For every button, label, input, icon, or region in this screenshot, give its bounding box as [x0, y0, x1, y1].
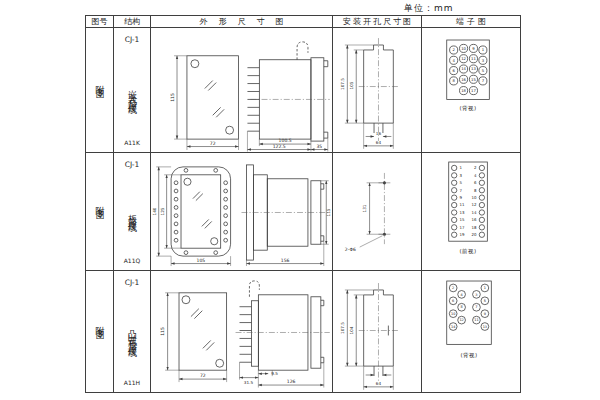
model-label: CJ-1 [125, 278, 140, 287]
row1-fig-no-cell: 附图3 [86, 28, 114, 153]
terminal-number: 2 [474, 165, 477, 170]
terminal-number: 4 [474, 173, 477, 178]
terminal-pin [451, 210, 456, 215]
hook-symbol [297, 42, 308, 60]
row3-fig-no-cell: 附图3 [86, 271, 114, 393]
terminal-number: 5 [460, 180, 463, 185]
terminal-diagram-rear-a11k: (背视) 210914121136141358161571817 [422, 28, 520, 152]
terminal-pin [479, 225, 484, 230]
structure-name: 板前接线 [126, 207, 139, 219]
model-code: A11K [124, 139, 140, 146]
side-view: 100.5 122.5 35 [247, 42, 329, 152]
view-label: (前视) [459, 248, 476, 255]
model-label: CJ-1 [125, 35, 140, 44]
dim-label: 131 [362, 204, 367, 212]
terminal-pin [451, 188, 456, 193]
mounting-drawing-a11q: 131 2-Φ6 [333, 153, 421, 270]
terminal-pin [451, 202, 456, 207]
dim-label: 122.5 [273, 144, 286, 149]
dim-label: 64 [376, 381, 382, 386]
terminal-number: 15 [460, 217, 466, 222]
terminal-number: 9 [472, 47, 475, 51]
terminal-number: 7 [482, 79, 485, 83]
hole-spec-label: 2-Φ6 [345, 247, 356, 252]
terminal-number: 1 [484, 286, 486, 290]
mounting-drawing-a11h: 107.5 104 64 [333, 271, 421, 392]
terminal-pin [479, 217, 484, 222]
terminal-number: 20 [471, 232, 477, 237]
terminal-number: 11 [474, 318, 478, 322]
terminal-number: 18 [461, 89, 466, 93]
dim-label: 100.5 [279, 138, 292, 143]
front-view: 140 125 105 [152, 167, 231, 266]
dim-label: 31.5 [244, 380, 254, 385]
header-fig-no: 图号 [86, 16, 114, 28]
view-label: (背视) [460, 352, 477, 359]
terminal-pin [479, 165, 484, 170]
terminal-pin [479, 180, 484, 185]
row1-structure-cell: CJ-1 嵌入式后接线 A11K [114, 28, 151, 153]
terminal-pin [479, 210, 484, 215]
terminal-number: 16 [471, 217, 477, 222]
fig-no-label: 附图3 [93, 199, 106, 224]
side-view: 9.5 31.5 126 [236, 281, 330, 388]
terminal-number: 5 [482, 69, 485, 73]
model-label: CJ-1 [125, 160, 140, 169]
terminal-number: 7 [460, 188, 463, 193]
row2-outline-cell: 140 125 105 156 115 [151, 153, 333, 271]
dim-label: 140 [152, 207, 157, 215]
mounting-drawing-a11k: 107.5 105 16 64 [333, 28, 421, 152]
terminal-diagram-front-a11q: (前视) 1357911131517192468101214161820 [422, 153, 520, 270]
terminal-number: 14 [471, 210, 477, 215]
terminal-number: 1 [460, 165, 463, 170]
terminal-number: 6 [452, 299, 454, 303]
structure-name: 凸出式板后接线 [126, 323, 139, 344]
view-label: (背视) [459, 105, 476, 112]
row3-outline-cell: 115 72 9.5 31.5 [151, 271, 333, 393]
terminal-pin [451, 173, 456, 178]
row1-outline-cell: 115 72 100.5 122.5 35 [151, 28, 333, 153]
terminal-number: 6 [474, 180, 477, 185]
front-view: 115 72 [170, 56, 239, 150]
dim-label: 107.5 [340, 78, 345, 90]
terminal-diagram-rear-a11h: (背视) 2610144812371115913 [422, 271, 520, 392]
front-view: 115 72 [160, 293, 226, 382]
dim-label: 105 [349, 81, 354, 89]
spec-table: 图号 结构 外形尺寸图 安装开孔尺寸图 端子图 附图3 CJ-1 嵌入式后接线 … [85, 15, 521, 393]
terminal-number: 10 [451, 312, 455, 316]
terminal-number: 4 [460, 293, 462, 297]
terminal-number: 10 [461, 47, 466, 51]
terminal-number: 17 [460, 225, 466, 230]
row1-terminal-cell: (背视) 210914121136141358161571817 [422, 28, 521, 153]
model-code: A11H [124, 379, 140, 386]
unit-label: 单位：mm [404, 2, 454, 15]
terminal-pin [479, 188, 484, 193]
structure-name: 嵌入式后接线 [126, 83, 139, 101]
terminal-number: 11 [460, 202, 466, 207]
row2-mounting-cell: 131 2-Φ6 [333, 153, 422, 271]
outline-drawing-a11k: 115 72 100.5 122.5 35 [151, 28, 332, 152]
terminal-number: 13 [471, 67, 476, 71]
terminal-number: 8 [452, 79, 455, 83]
dim-label: 115 [326, 208, 331, 216]
dim-label: 126 [287, 379, 296, 384]
terminal-pin [479, 173, 484, 178]
terminal-number: 4 [452, 59, 455, 63]
terminal-number: 12 [461, 57, 466, 61]
terminal-pin [451, 225, 456, 230]
row3-terminal-cell: (背视) 2610144812371115913 [422, 271, 521, 393]
terminal-number: 3 [460, 173, 463, 178]
header-mounting: 安装开孔尺寸图 [333, 16, 422, 28]
dim-label: 107.5 [340, 322, 345, 334]
dim-label: 9.5 [271, 371, 278, 376]
terminal-number: 2 [452, 286, 454, 290]
terminal-number: 13 [460, 210, 466, 215]
row2-terminal-cell: (前视) 1357911131517192468101214161820 [422, 153, 521, 271]
terminal-pin [451, 180, 456, 185]
terminal-number: 7 [475, 305, 477, 309]
terminal-number: 11 [471, 57, 476, 61]
dim-label: 115 [160, 327, 165, 336]
terminal-number: 8 [474, 188, 477, 193]
outline-drawing-a11h: 115 72 9.5 31.5 [151, 271, 332, 392]
terminal-pin [451, 165, 456, 170]
terminal-number: 3 [482, 59, 485, 63]
terminal-pin [451, 217, 456, 222]
terminal-number: 5 [484, 299, 486, 303]
datasheet-page: 单位：mm 图号 结构 外形尺寸图 安装开孔尺寸图 端子图 附图3 CJ-1 嵌… [0, 0, 600, 400]
terminal-pin [479, 195, 484, 200]
terminal-number: 18 [471, 225, 477, 230]
row3-structure-cell: CJ-1 凸出式板后接线 A11H [114, 271, 151, 393]
dim-label: 105 [197, 258, 206, 263]
terminal-number: 15 [471, 78, 476, 82]
header-structure: 结构 [114, 16, 151, 28]
terminal-number: 13 [483, 325, 487, 329]
row2-fig-no-cell: 附图3 [86, 153, 114, 271]
terminal-number: 2 [452, 48, 455, 52]
terminal-pin [451, 195, 456, 200]
terminal-number: 14 [461, 67, 466, 71]
terminal-number: 10 [471, 195, 477, 200]
terminal-number: 6 [452, 69, 455, 73]
terminal-number: 19 [460, 232, 466, 237]
terminal-number: 16 [461, 78, 466, 82]
terminal-number: 8 [460, 305, 462, 309]
terminal-pin [479, 202, 484, 207]
row2-structure-cell: CJ-1 板前接线 A11Q [114, 153, 151, 271]
fig-no-label: 附图3 [93, 319, 106, 344]
side-view: 156 115 [242, 165, 331, 266]
dim-label: 72 [200, 373, 206, 378]
terminal-number: 1 [482, 48, 485, 52]
header-outline: 外形尺寸图 [151, 16, 333, 28]
terminal-pin [479, 232, 484, 237]
dim-label: 64 [376, 140, 382, 145]
fig-no-label: 附图3 [93, 78, 106, 103]
row3-mounting-cell: 107.5 104 64 [333, 271, 422, 393]
terminal-number: 12 [459, 318, 463, 322]
terminal-number: 14 [451, 325, 455, 329]
terminal-number: 17 [471, 89, 476, 93]
dim-label: 125 [160, 207, 165, 215]
outline-drawing-a11q: 140 125 105 156 115 [151, 153, 332, 270]
terminal-pin [451, 232, 456, 237]
hook-symbol [249, 281, 259, 297]
dim-label: 72 [210, 141, 216, 146]
header-terminal: 端子图 [422, 16, 521, 28]
terminal-number: 12 [471, 202, 477, 207]
model-code: A11Q [124, 257, 140, 264]
dim-label: 35 [316, 144, 322, 149]
dim-label: 104 [349, 326, 354, 334]
terminal-number: 9 [484, 312, 486, 316]
dim-label: 156 [281, 258, 290, 263]
terminal-number: 9 [460, 195, 463, 200]
row1-mounting-cell: 107.5 105 16 64 [333, 28, 422, 153]
dim-label: 115 [170, 93, 175, 102]
terminal-number: 3 [475, 293, 477, 297]
dim-label: 16 [376, 131, 382, 136]
